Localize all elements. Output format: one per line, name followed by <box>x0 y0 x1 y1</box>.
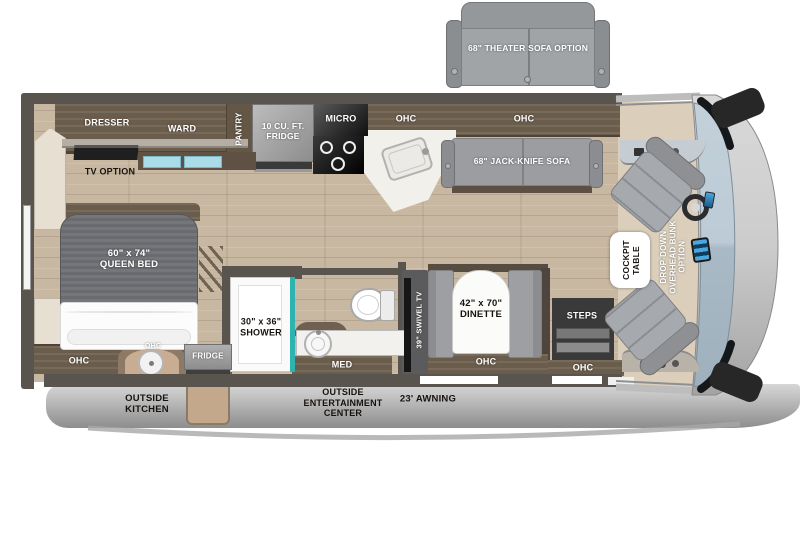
med-label: MED <box>332 360 353 371</box>
toilet-room-wall <box>300 268 406 275</box>
bottom-wall <box>44 374 622 387</box>
faucet-icon <box>422 148 429 155</box>
outside-kitchen-label: OUTSIDE KITCHEN <box>125 393 169 415</box>
ward-label: WARD <box>168 124 196 135</box>
kitchen-fridge-label: 10 CU. FT. FRIDGE <box>262 121 305 141</box>
sofa-knob-icon <box>524 76 531 83</box>
dinette-ohc-label: OHC <box>476 357 497 368</box>
queen-bed-label: 60" x 74" QUEEN BED <box>100 248 158 270</box>
cockpit-table-label: COCKPIT TABLE <box>621 240 641 280</box>
rv-floorplan: 68" THEATER SOFA OPTION DRESSER WARD PAN… <box>0 0 800 545</box>
kitchen-fridge-vent <box>254 162 312 172</box>
cooktop <box>313 136 364 174</box>
sofa-knob-icon <box>593 163 599 169</box>
theater-sofa-armrest-right <box>593 20 610 88</box>
monitor-screen <box>703 191 716 208</box>
sofa-knob-icon <box>598 68 605 75</box>
rear-window <box>23 205 31 290</box>
ohc-right-label: OHC <box>514 114 535 125</box>
window <box>420 376 498 384</box>
sofa-knob-icon <box>445 163 451 169</box>
burner-icon <box>320 141 333 154</box>
bed-blanket <box>60 302 198 350</box>
shower-label: 30" x 36" SHOWER <box>240 316 282 337</box>
burner-icon <box>343 141 356 154</box>
tv-option-label: TV OPTION <box>85 167 135 178</box>
theater-sofa-label: 68" THEATER SOFA OPTION <box>468 43 588 53</box>
sofa-base <box>452 186 592 193</box>
wardrobe-drawer <box>184 156 222 168</box>
dinette-bench-right <box>508 270 542 358</box>
window <box>608 377 634 385</box>
dinette-label: 42" x 70" DINETTE <box>460 298 503 320</box>
bed-pillow <box>67 329 191 345</box>
kitchen-sink <box>380 136 434 183</box>
wardrobe-drawer <box>143 156 181 168</box>
entry-ohc-label: OHC <box>573 363 594 374</box>
toilet-tank <box>380 290 395 321</box>
sofa-knob-icon <box>451 68 458 75</box>
vanity-sink <box>304 330 332 358</box>
bedroom-tv <box>74 145 139 160</box>
outside-fridge-label: FRIDGE <box>192 351 223 360</box>
outside-kitchen-sink <box>138 350 164 376</box>
bunk-option-label: DROP-DOWN OVERHEAD BUNK OPTION <box>659 220 687 293</box>
shower-glass <box>290 277 295 372</box>
pantry-label: PANTRY <box>234 112 243 145</box>
steps-label: STEPS <box>567 311 598 322</box>
dinette-bench-left <box>428 270 454 358</box>
swivel-tv <box>404 278 411 372</box>
dresser-label: DRESSER <box>85 118 130 129</box>
window <box>552 376 602 384</box>
swivel-tv-label: 39" SWIVEL TV <box>416 292 425 349</box>
outside-kitchen-ohc-label: OHC <box>145 343 161 351</box>
ohc-left-label: OHC <box>396 114 417 125</box>
burner-icon <box>331 157 345 171</box>
theater-sofa-back <box>461 2 595 30</box>
outside-entertainment-label: OUTSIDE ENTERTAINMENT CENTER <box>304 387 383 419</box>
console-screen <box>690 237 711 263</box>
dinette-side-wall <box>541 268 550 360</box>
awning-label: 23' AWNING <box>400 393 456 404</box>
bed-rail <box>199 246 223 292</box>
micro-label: MICRO <box>326 114 357 125</box>
top-wall <box>21 93 622 104</box>
jack-knife-sofa-label: 68" JACK-KNIFE SOFA <box>474 156 571 166</box>
bedroom-ohc-label: OHC <box>69 356 90 367</box>
